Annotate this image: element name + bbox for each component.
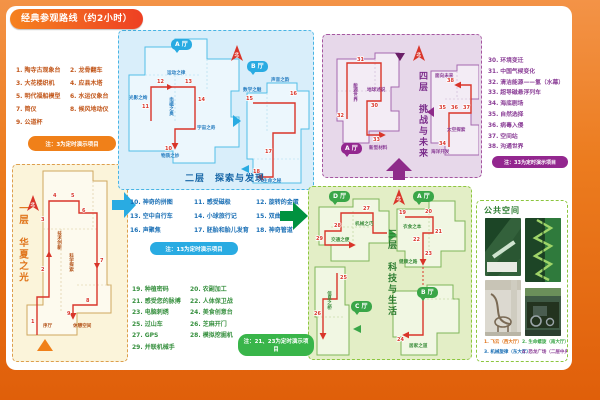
list-item: 4. 应县木塔: [70, 77, 120, 90]
list-item: 22. 人体保卫战: [190, 296, 248, 308]
area-label: 物质之妙: [161, 152, 180, 159]
list-item: 8. 候风地动仪: [70, 103, 120, 116]
route-stop: 19: [399, 210, 406, 216]
page-title: 经典参观路线（约2小时）: [10, 9, 143, 29]
list-item: 34. 海底剧场: [488, 99, 570, 110]
list-item: 38. 沟通世界: [488, 142, 570, 153]
area-label: 地球述说: [367, 86, 386, 93]
list-item: 7. 简仪: [16, 103, 70, 116]
route-arrow-icon-to-floor3: [280, 202, 308, 230]
route-stop: 15: [246, 96, 253, 102]
route-stop: 13: [185, 79, 192, 85]
hall-badge: B 厅: [247, 61, 268, 72]
floor2-map: 10 11 12 13 14 15 16 17 18 光影之绚 运动之律 电磁之…: [119, 31, 311, 187]
list-item: 31. 中国气候变化: [488, 67, 570, 78]
floor1-exhibit-list: 1. 陶寺古观象台 2. 龙骨翻车 3. 大花楼织机 4. 应县木塔 5. 明代…: [16, 64, 120, 129]
photo-caption: 1. 飞云（西大厅）: [484, 339, 522, 345]
list-item: 27. GPS: [132, 330, 190, 342]
floor4-map-panel: 30 31 32 33 34 35 36 37 38 能源世界 地球述说 新型材…: [322, 34, 482, 178]
public-space-box: 公共空间: [476, 200, 568, 362]
area-label: 居家之道: [409, 342, 428, 349]
route-stop: 12: [157, 79, 164, 85]
svg-text:北: 北: [235, 51, 240, 58]
floor2-demo-note: 注：13为定时演示项目: [150, 242, 238, 255]
route-stop: 29: [316, 236, 323, 242]
route-stop: 36: [451, 105, 458, 111]
area-label: 机械之巧: [355, 220, 374, 227]
list-item: 3. 大花楼织机: [16, 77, 70, 90]
route-stop: 24: [397, 337, 404, 343]
list-item: 24. 美食创意台: [190, 307, 248, 319]
list-item: 29. 并联机械手: [132, 342, 190, 354]
list-item: 30. 环境变迁: [488, 56, 570, 67]
list-item: 13. 空中自行车: [130, 210, 194, 224]
floor4-title: 四层 挑战与未来: [416, 71, 429, 159]
floor3-map-panel: 19 20 21 22 23 24 25 26 27 28 29 交通之便 机械…: [308, 186, 472, 360]
route-stop: 37: [463, 105, 470, 111]
route-stop: 7: [100, 258, 104, 264]
list-item: 36. 病毒入侵: [488, 121, 570, 132]
area-label: 海洋开发: [431, 148, 450, 155]
photo-feiyun: [485, 218, 521, 276]
list-item: 17. 胚胎和胎儿发育: [194, 224, 256, 238]
route-stop: 1: [31, 319, 35, 325]
route-stop: 16: [290, 91, 297, 97]
north-arrow-icon: 北: [413, 45, 425, 61]
route-stop: 17: [265, 149, 272, 155]
svg-text:北: 北: [31, 201, 36, 208]
floor4-demo-note: 注：33为定时演示项目: [492, 156, 568, 168]
route-stop: 4: [53, 193, 57, 199]
list-item: 21. 感受您的脉搏: [132, 296, 190, 308]
hall-badge: A 厅: [413, 191, 434, 202]
hall-badge: D 厅: [329, 191, 350, 202]
north-arrow-icon: 北: [27, 195, 39, 211]
floor3-demo-note: 注：21、23为定时演示项目: [238, 334, 314, 356]
area-label: 序厅: [43, 322, 53, 329]
photo-dinosaur-skeleton: [485, 280, 521, 336]
route-stop: 34: [439, 141, 446, 147]
direction-arrow-icon: [353, 325, 361, 333]
area-label: 声音之韵: [270, 76, 290, 83]
route-stop: 23: [425, 251, 432, 257]
floor3-exhibit-list: 19. 种植密码 20. 农副加工 21. 感受您的脉搏 22. 人体保卫战 2…: [132, 284, 248, 353]
route-stop: 33: [373, 137, 380, 143]
route-stop: 11: [142, 104, 149, 110]
hall-badge: A 厅: [171, 39, 192, 50]
photo-caption: 4. 恐龙广场（二层中央大厅）: [522, 349, 568, 355]
hall-badge: C 厅: [351, 301, 372, 312]
floor1-map-panel: 一层 华夏之光 1 2 3 4 5 6 7 8 9 序厅 技术创新 科学探索 休…: [12, 164, 128, 362]
floor2-title: 二层 探索与发现: [185, 171, 265, 184]
area-label: 电磁之奥: [169, 96, 174, 117]
area-label: 休憩空间: [72, 322, 92, 329]
area-label: 信息之桥: [327, 290, 332, 311]
area-label: 健康之路: [399, 258, 418, 265]
svg-text:北: 北: [417, 51, 422, 58]
route-stop: 28: [334, 223, 341, 229]
route-stop: 9: [67, 311, 71, 317]
area-label: 太空探索: [447, 126, 466, 133]
route-stop: 35: [439, 105, 446, 111]
entrance-arrow-icon: [37, 339, 53, 351]
route-stop: 20: [425, 209, 432, 215]
route-stop: 25: [340, 275, 347, 281]
area-label: 科学探索: [69, 252, 74, 273]
list-item: 2. 龙骨翻车: [70, 64, 120, 77]
museum-route-map: 经典参观路线（约2小时） 1. 陶寺古观象台 2. 龙骨翻车 3. 大花楼织机 …: [0, 0, 600, 400]
route-stop: 14: [198, 97, 205, 103]
list-item: 19. 种植密码: [132, 284, 190, 296]
route-stop: 22: [413, 237, 420, 243]
floor4-exhibit-list: 30. 环境变迁 31. 中国气候变化 32. 清洁能源——氢（水幕） 33. …: [488, 56, 570, 153]
list-item: 26. 芝麻开门: [190, 319, 248, 331]
list-item: 14. 小球旅行记: [194, 210, 256, 224]
route-arrow-icon-to-floor4: [386, 158, 412, 180]
area-label: 衣食之本: [403, 223, 422, 230]
floor1-map: 1 2 3 4 5 6 7 8 9 序厅 技术创新 科学探索 休憩空间 北: [13, 165, 125, 359]
list-item: 20. 农副加工: [190, 284, 248, 296]
north-arrow-icon: 北: [393, 189, 405, 205]
list-item: 6. 水运仪象台: [70, 90, 120, 103]
route-stop: 27: [363, 206, 370, 212]
list-item: 10. 神奇的拼图: [130, 196, 194, 210]
route-stop: 10: [165, 146, 172, 152]
list-item: 16. 声聚焦: [130, 224, 194, 238]
list-item: 25. 过山车: [132, 319, 190, 331]
area-label: 能源世界: [353, 82, 358, 103]
route-stop: 8: [86, 298, 90, 304]
photo-tractor-wall: [525, 288, 561, 336]
svg-text:北: 北: [397, 195, 402, 202]
area-label: 运动之律: [167, 69, 186, 76]
list-item: 1. 陶寺古观象台: [16, 64, 70, 77]
route-stop: 26: [314, 311, 321, 317]
area-label: 生命之秘: [263, 177, 282, 184]
list-item: 11. 感受磁极: [194, 196, 256, 210]
area-label: 交通之便: [331, 236, 350, 243]
route-stop: 2: [41, 267, 45, 273]
area-label: 宇宙之奇: [197, 124, 216, 131]
public-space-title: 公共空间: [484, 205, 520, 216]
list-item: 33. 超导磁悬浮列车: [488, 88, 570, 99]
route-stop: 32: [337, 113, 344, 119]
route-stop: 3: [41, 217, 45, 223]
area-label: 光影之绚: [128, 94, 148, 101]
photo-dna-spiral: [525, 218, 561, 282]
floor3-title: 三层 科技与生活: [385, 229, 398, 317]
route-stop: 6: [82, 208, 86, 214]
area-label: 数学之魅: [243, 86, 262, 93]
area-label: 面向未来: [435, 72, 454, 79]
hall-badge: B 厅: [417, 287, 438, 298]
route-stop: 5: [71, 193, 75, 199]
route-stop: 30: [371, 103, 378, 109]
list-item: 5. 明代福船模型: [16, 90, 70, 103]
list-item: 35. 自然选择: [488, 110, 570, 121]
hall-badge: A 厅: [341, 143, 362, 154]
floor1-demo-note: 注：3为定时演示项目: [28, 136, 116, 151]
route-stop: 21: [435, 229, 442, 235]
list-item: 9. 公道杯: [16, 116, 70, 129]
floor2-map-panel: 10 11 12 13 14 15 16 17 18 光影之绚 运动之律 电磁之…: [118, 30, 314, 190]
list-item: 37. 空间站: [488, 132, 570, 143]
list-item: 32. 清洁能源——氢（水幕）: [488, 78, 570, 89]
route-stop: 31: [357, 57, 364, 63]
photo-caption: 2. 生命螺旋（南大厅）: [522, 339, 568, 345]
list-item: 23. 电脑刺绣: [132, 307, 190, 319]
area-label: 新型材料: [369, 144, 388, 151]
